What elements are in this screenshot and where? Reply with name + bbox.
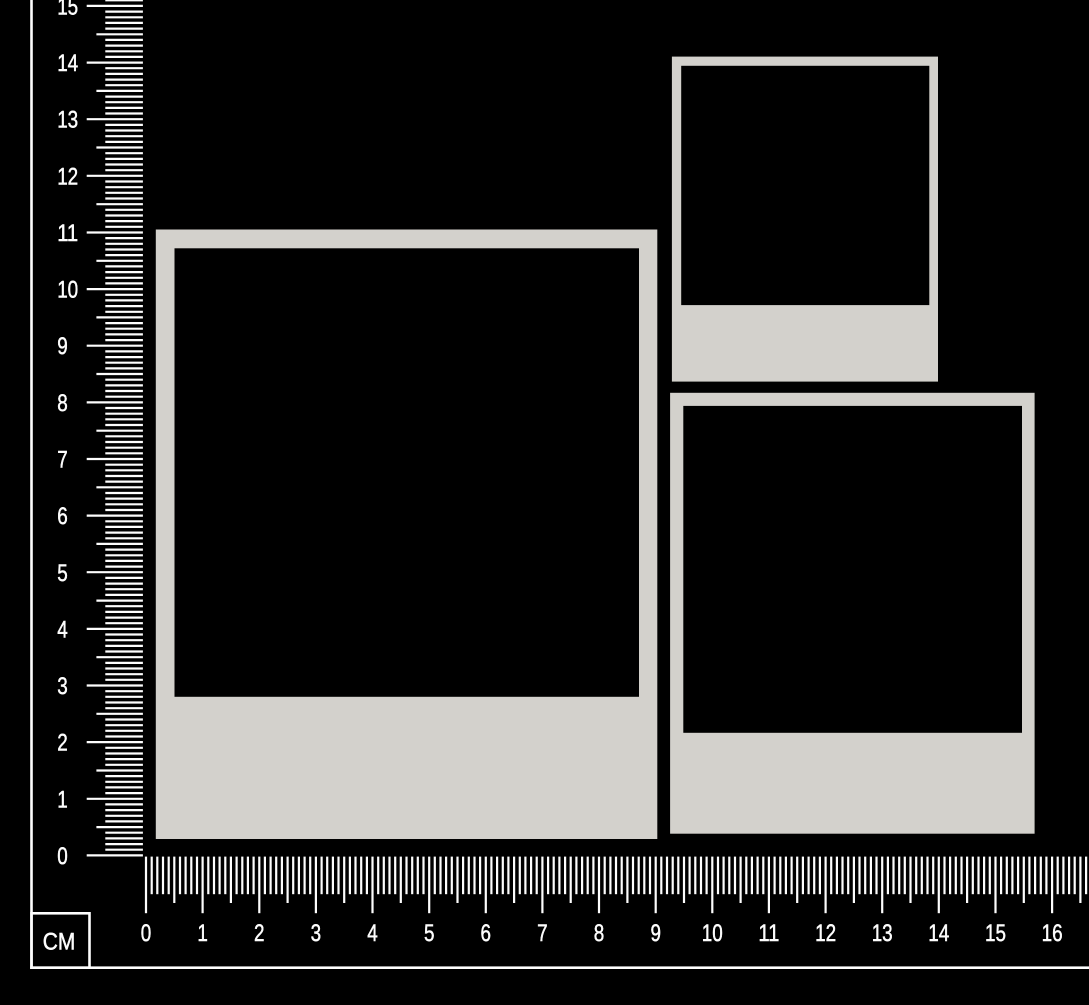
svg-text:9: 9 (57, 333, 67, 360)
svg-text:12: 12 (815, 920, 836, 947)
svg-text:14: 14 (57, 50, 78, 77)
svg-text:0: 0 (141, 920, 152, 947)
svg-text:3: 3 (57, 673, 67, 700)
svg-text:9: 9 (650, 920, 661, 947)
svg-text:1: 1 (57, 786, 67, 813)
svg-text:12: 12 (57, 163, 78, 190)
svg-text:8: 8 (594, 920, 605, 947)
svg-text:14: 14 (928, 920, 949, 947)
svg-text:6: 6 (57, 503, 67, 530)
svg-text:7: 7 (537, 920, 548, 947)
svg-text:8: 8 (57, 390, 67, 417)
svg-text:0: 0 (57, 843, 67, 870)
svg-text:5: 5 (424, 920, 435, 947)
svg-text:6: 6 (481, 920, 492, 947)
svg-text:11: 11 (758, 920, 779, 947)
svg-text:3: 3 (311, 920, 322, 947)
svg-text:5: 5 (57, 560, 67, 587)
svg-text:13: 13 (57, 107, 78, 134)
svg-text:2: 2 (254, 920, 265, 947)
svg-text:13: 13 (872, 920, 893, 947)
svg-text:15: 15 (985, 920, 1006, 947)
svg-text:16: 16 (1042, 920, 1063, 947)
svg-text:2: 2 (57, 730, 67, 757)
svg-text:CM: CM (43, 928, 76, 955)
svg-text:4: 4 (367, 920, 378, 947)
svg-text:1: 1 (197, 920, 208, 947)
svg-text:15: 15 (57, 0, 78, 20)
svg-text:4: 4 (57, 616, 67, 643)
svg-text:7: 7 (57, 447, 67, 474)
svg-text:10: 10 (702, 920, 723, 947)
svg-text:11: 11 (57, 220, 78, 247)
svg-text:10: 10 (57, 277, 78, 304)
